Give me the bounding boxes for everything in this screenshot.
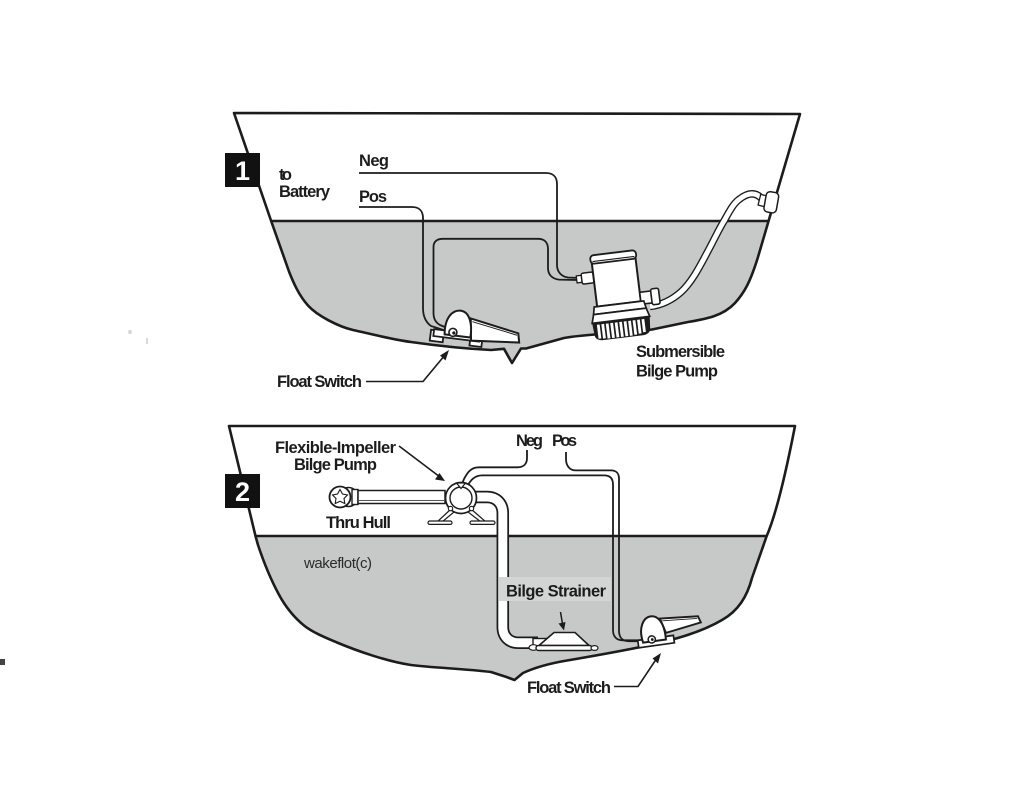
svg-text:to: to	[279, 166, 292, 184]
svg-text:Submersible: Submersible	[636, 343, 725, 361]
svg-text:Pos: Pos	[359, 188, 387, 206]
svg-text:Pos: Pos	[552, 432, 577, 450]
svg-text:Thru Hull: Thru Hull	[326, 514, 391, 532]
svg-text:Bilge Pump: Bilge Pump	[294, 456, 377, 474]
svg-text:2: 2	[235, 477, 250, 507]
svg-text:Bilge Strainer: Bilge Strainer	[506, 583, 607, 601]
svg-text:Battery: Battery	[279, 183, 331, 201]
svg-text:1: 1	[235, 156, 250, 186]
svg-text:Float Switch: Float Switch	[277, 373, 362, 391]
svg-text:Neg: Neg	[516, 432, 543, 450]
svg-text:Flexible-Impeller: Flexible-Impeller	[275, 439, 397, 457]
svg-text:wakeflot(c): wakeflot(c)	[303, 555, 372, 572]
svg-text:Float Switch: Float Switch	[527, 679, 611, 697]
svg-text:Neg: Neg	[359, 152, 389, 170]
svg-text:Bilge Pump: Bilge Pump	[636, 363, 718, 381]
